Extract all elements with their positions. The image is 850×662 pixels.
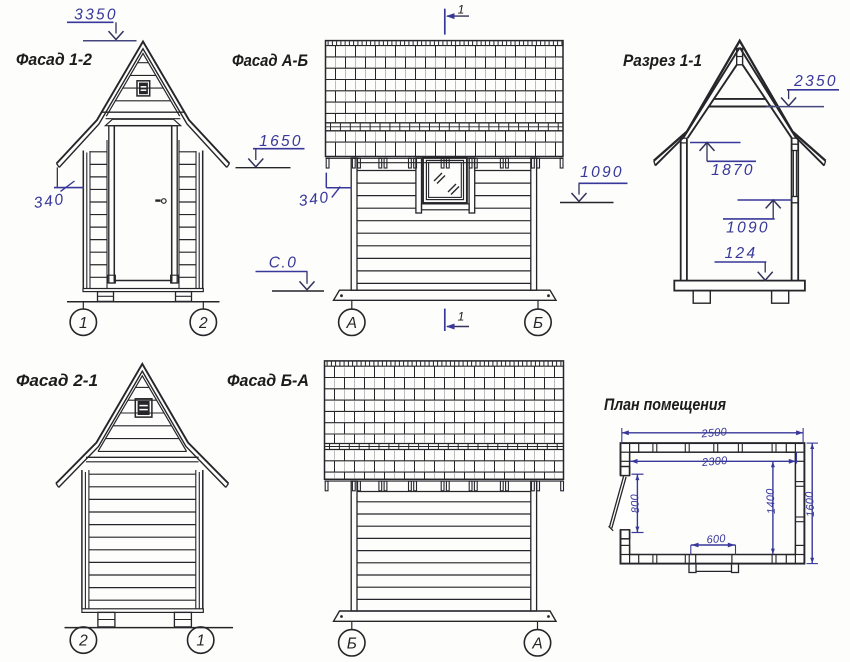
svg-text:1870: 1870 bbox=[711, 162, 755, 179]
svg-text:2500: 2500 bbox=[700, 426, 728, 440]
svg-text:2: 2 bbox=[198, 315, 208, 332]
svg-text:2: 2 bbox=[78, 633, 88, 650]
svg-text:Фасад А-Б: Фасад А-Б bbox=[232, 52, 308, 70]
svg-text:План помещения: План помещения bbox=[604, 396, 726, 414]
svg-text:Разрез 1-1: Разрез 1-1 bbox=[623, 52, 702, 70]
svg-text:1: 1 bbox=[458, 310, 465, 324]
svg-text:Б: Б bbox=[347, 635, 357, 652]
svg-text:2300: 2300 bbox=[700, 455, 728, 469]
svg-text:600: 600 bbox=[706, 533, 727, 547]
svg-text:3350: 3350 bbox=[74, 7, 118, 24]
svg-text:1: 1 bbox=[196, 633, 205, 650]
svg-text:2350: 2350 bbox=[793, 73, 838, 90]
svg-text:124: 124 bbox=[725, 245, 758, 262]
svg-text:1400: 1400 bbox=[765, 487, 778, 514]
svg-text:Б: Б bbox=[533, 315, 543, 332]
svg-text:С.0: С.0 bbox=[269, 255, 298, 272]
svg-text:Фасад 1-2: Фасад 1-2 bbox=[16, 51, 92, 69]
svg-text:Фасад Б-А: Фасад Б-А bbox=[227, 372, 309, 390]
svg-text:1650: 1650 bbox=[259, 133, 303, 150]
svg-text:Фасад 2-1: Фасад 2-1 bbox=[16, 372, 98, 390]
svg-text:1: 1 bbox=[458, 3, 465, 17]
svg-text:1090: 1090 bbox=[580, 164, 624, 181]
svg-text:1: 1 bbox=[79, 315, 88, 332]
svg-text:А: А bbox=[346, 315, 357, 332]
svg-text:800: 800 bbox=[629, 493, 642, 513]
svg-text:А: А bbox=[531, 635, 542, 652]
svg-text:1090: 1090 bbox=[726, 220, 770, 237]
svg-text:1600: 1600 bbox=[804, 490, 817, 517]
